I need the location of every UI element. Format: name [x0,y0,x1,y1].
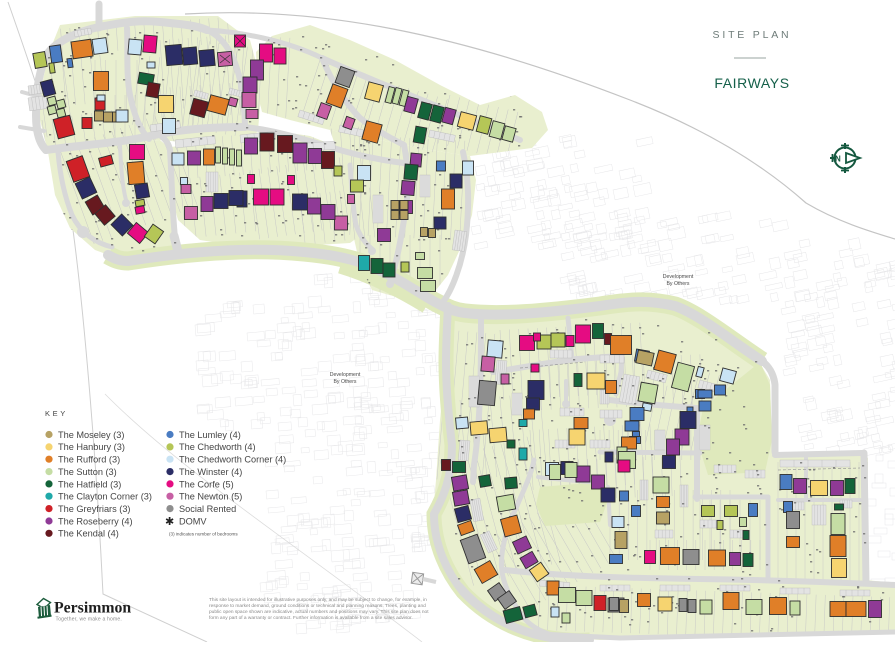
svg-text:KEY: KEY [45,409,68,418]
svg-text:✱: ✱ [165,516,174,528]
svg-text:N: N [835,155,841,164]
svg-text:The Winster (4): The Winster (4) [179,467,242,477]
svg-text:response to market demand, gro: response to market demand, ground condit… [209,603,426,609]
svg-text:The Moseley (3): The Moseley (3) [58,430,124,440]
svg-text:The Hanbury (3): The Hanbury (3) [58,442,125,452]
svg-text:Persimmon: Persimmon [54,600,131,617]
svg-text:DOMV: DOMV [179,516,207,526]
svg-text:This site layout is intended f: This site layout is intended for illustr… [209,597,427,603]
svg-text:Social Rented: Social Rented [179,504,236,514]
svg-text:The Lumley (4): The Lumley (4) [179,430,241,440]
svg-text:The Clayton Corner (3): The Clayton Corner (3) [58,492,152,502]
svg-text:The Chedworth Corner (4): The Chedworth Corner (4) [179,455,286,465]
svg-text:The Roseberry (4): The Roseberry (4) [58,516,133,526]
svg-text:Together, we make a home.: Together, we make a home. [56,617,122,623]
svg-text:The Hatfield (3): The Hatfield (3) [58,479,121,489]
svg-text:The Newton (5): The Newton (5) [179,492,242,502]
svg-text:(3) indicates number of bedroo: (3) indicates number of bedrooms [169,531,238,536]
svg-text:The Corfe (5): The Corfe (5) [179,479,234,489]
svg-text:SITE PLAN: SITE PLAN [713,29,792,41]
svg-text:form any part of a warranty or: form any part of a warranty or contract.… [209,615,413,621]
svg-text:The Kendal (4): The Kendal (4) [58,529,119,539]
svg-text:public open space shown are in: public open space shown are indicative, … [209,609,429,615]
svg-text:The Rufford (3): The Rufford (3) [58,455,120,465]
svg-text:The Chedworth (4): The Chedworth (4) [179,442,256,452]
svg-text:The Sutton (3): The Sutton (3) [58,467,117,477]
svg-text:Development: Development [330,372,361,378]
svg-text:FAIRWAYS: FAIRWAYS [714,75,789,91]
svg-text:By Others: By Others [666,281,689,287]
svg-text:Development: Development [663,274,694,280]
svg-text:By Others: By Others [333,379,356,385]
svg-text:The Greyfriars (3): The Greyfriars (3) [58,504,131,514]
